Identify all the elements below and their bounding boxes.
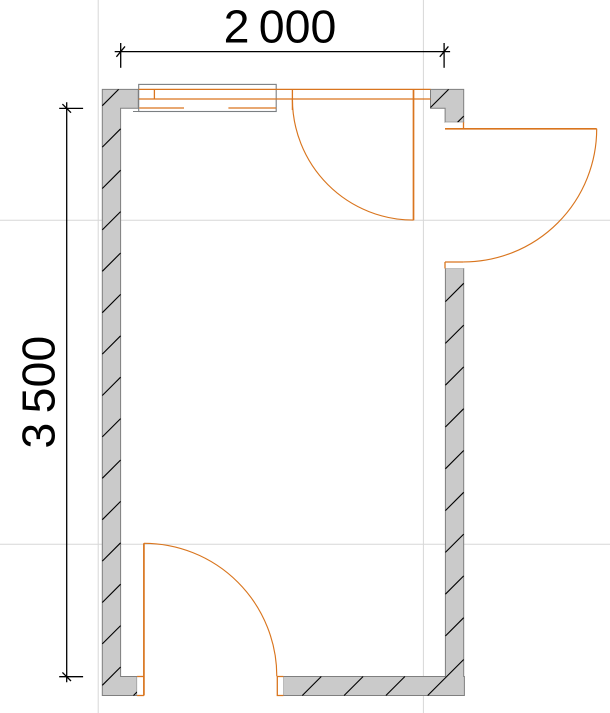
svg-text:2 000: 2 000	[224, 1, 337, 53]
svg-text:3 500: 3 500	[12, 336, 64, 449]
